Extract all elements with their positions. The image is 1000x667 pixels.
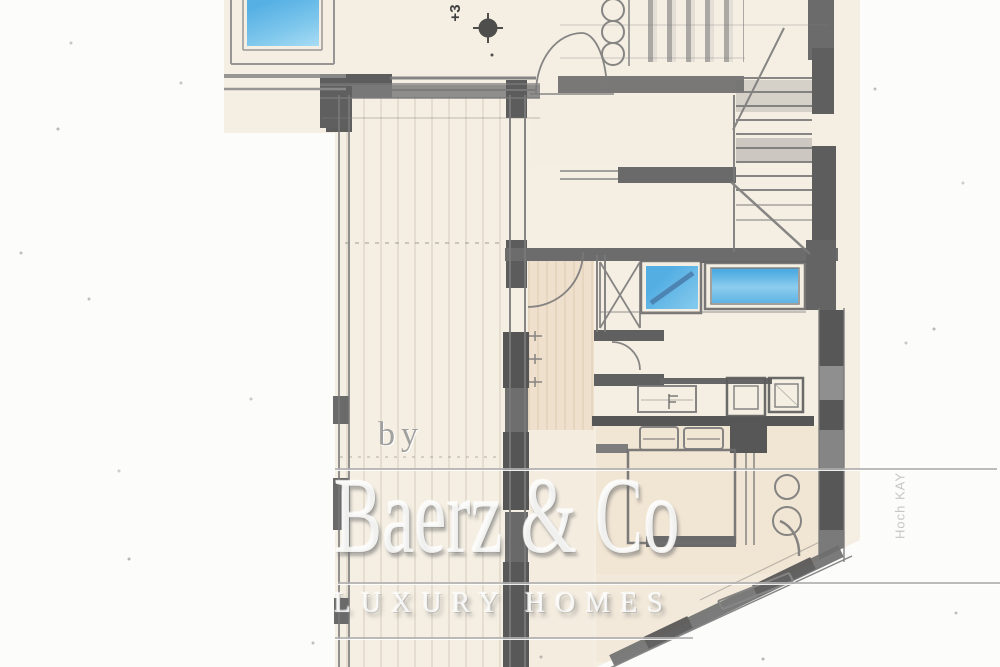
right-facade-edges — [819, 308, 844, 562]
floor-plan-scan: +3 by Baerz & Co LUXURY HOMES Hoch KAY — [0, 0, 1000, 667]
watermark-tagline: LUXURY HOMES — [334, 588, 673, 620]
scan-specks — [0, 0, 2, 2]
watermark-line-middle — [338, 582, 1000, 584]
top-wall-lines — [320, 25, 830, 118]
double-door-arcs — [530, 33, 614, 94]
hallway-doors — [528, 252, 640, 370]
hall-divider-lines — [560, 171, 618, 179]
closet-row — [638, 378, 803, 416]
window-row — [600, 261, 806, 328]
margin-note: Hoch KAY — [893, 436, 908, 576]
top-left-window-frame — [224, 0, 346, 89]
elevation-label: +3 — [447, 0, 469, 28]
headboard-scallops — [602, 0, 629, 66]
watermark-brand: Baerz & Co — [334, 460, 680, 573]
staircase — [731, 28, 812, 254]
survey-marker-icon — [473, 13, 503, 57]
watermark-by: by — [378, 416, 424, 454]
watermark-line-bottom — [335, 637, 693, 639]
